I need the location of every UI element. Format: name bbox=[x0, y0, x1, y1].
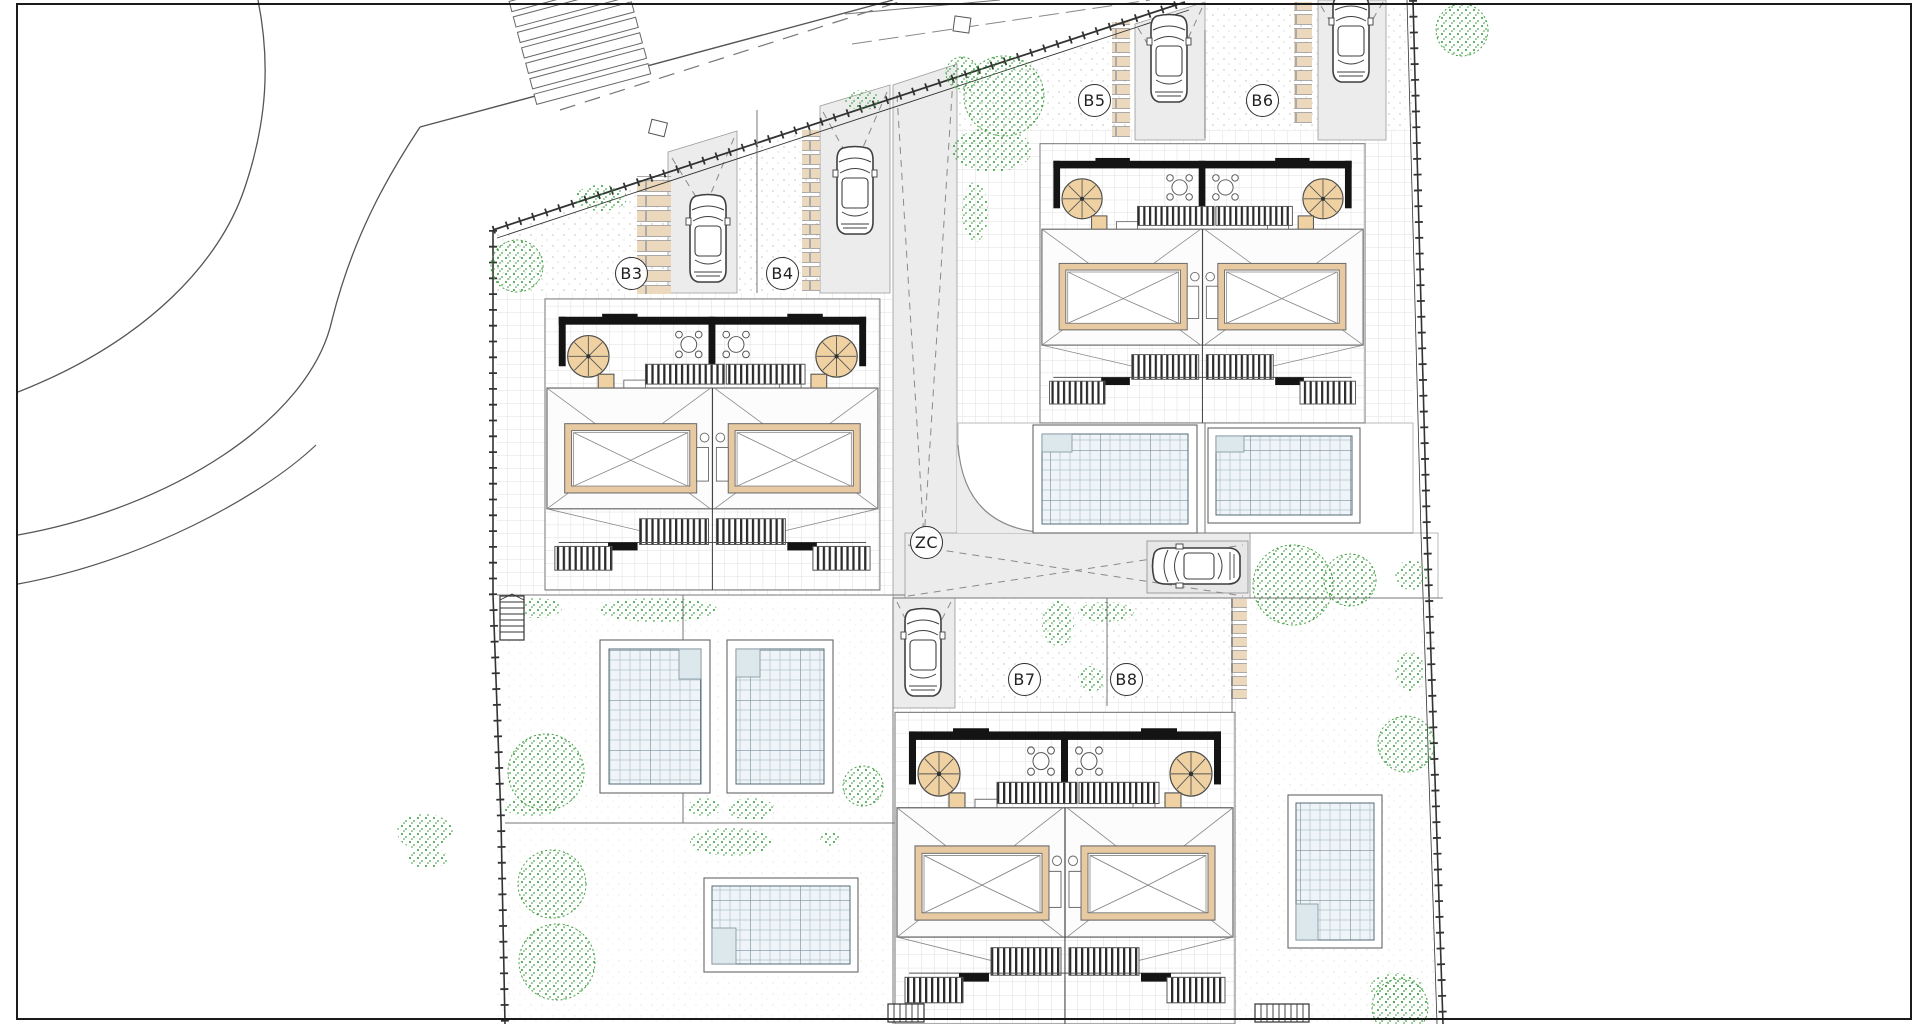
lot-label-b7: B7 bbox=[1008, 663, 1041, 696]
car-top-view-icon bbox=[833, 147, 877, 235]
pool-icon bbox=[727, 640, 833, 793]
lot-label-b3: B3 bbox=[615, 257, 648, 290]
pool-icon bbox=[1208, 428, 1360, 523]
pool-icon bbox=[1033, 425, 1197, 533]
utility-box bbox=[649, 119, 668, 136]
zebra-crossing-icon bbox=[505, 0, 651, 104]
road-curve-middle bbox=[18, 127, 420, 535]
car-top-view-icon bbox=[901, 609, 945, 697]
lot-label-b8: B8 bbox=[1110, 663, 1143, 696]
car-top-view-icon bbox=[686, 195, 730, 283]
pool-icon bbox=[704, 878, 858, 972]
duplex-villa-b7-b8 bbox=[895, 712, 1235, 1024]
duplex-villa-b5-b6 bbox=[1040, 144, 1365, 423]
road-curve-inner bbox=[18, 445, 316, 584]
lot-label-b4: B4 bbox=[766, 257, 799, 290]
car-top-view-icon bbox=[1329, 0, 1373, 82]
duplex-villa-b3-b4 bbox=[545, 299, 880, 590]
car-top-view-icon bbox=[1147, 15, 1191, 103]
lot-label-b5: B5 bbox=[1078, 84, 1111, 117]
lot-label-b6: B6 bbox=[1246, 84, 1279, 117]
site-plan-svg bbox=[0, 0, 1920, 1024]
utility-box bbox=[953, 16, 971, 33]
car-top-view-icon bbox=[1153, 544, 1241, 588]
pool-icon bbox=[600, 640, 710, 793]
stairs-icon bbox=[500, 594, 524, 640]
pool-icon bbox=[1288, 795, 1382, 948]
road-curve-outer bbox=[18, 0, 265, 392]
zone-label-zc: ZC bbox=[910, 526, 943, 559]
site-plan-drawing: B3 B4 B5 B6 B7 B8 ZC bbox=[0, 0, 1920, 1024]
